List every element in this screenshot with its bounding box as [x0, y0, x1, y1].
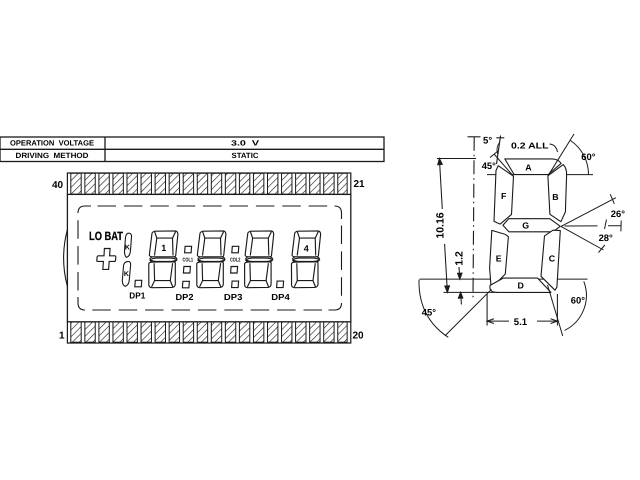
svg-text:45°: 45°	[422, 307, 436, 318]
svg-text:28°: 28°	[599, 232, 613, 243]
svg-text:1.2: 1.2	[454, 251, 466, 266]
svg-text:5°: 5°	[483, 136, 492, 147]
svg-text:LO BAT: LO BAT	[89, 229, 124, 243]
svg-text:E: E	[496, 254, 502, 264]
svg-text:A: A	[525, 162, 532, 172]
svg-text:D: D	[518, 281, 524, 291]
svg-text:45°: 45°	[482, 160, 496, 171]
svg-text:K: K	[124, 271, 129, 278]
svg-text:DP1: DP1	[129, 290, 145, 300]
svg-text:B: B	[552, 192, 558, 202]
svg-text:DP2: DP2	[176, 292, 194, 302]
svg-text:20: 20	[353, 331, 365, 342]
svg-text:60°: 60°	[581, 151, 595, 162]
svg-text:DP4: DP4	[271, 292, 290, 302]
svg-text:DP3: DP3	[224, 292, 243, 302]
svg-text:4: 4	[304, 243, 309, 253]
svg-text:10.16: 10.16	[434, 212, 446, 238]
svg-text:STATIC: STATIC	[232, 151, 260, 160]
svg-text:26°: 26°	[611, 208, 625, 219]
svg-text:3.0 V: 3.0 V	[231, 139, 260, 148]
svg-text:G: G	[522, 220, 529, 230]
svg-text:40: 40	[52, 180, 64, 191]
svg-text:21: 21	[354, 179, 366, 190]
svg-text:1: 1	[161, 243, 166, 253]
svg-text:60°: 60°	[571, 295, 585, 306]
svg-text:C: C	[549, 254, 556, 264]
svg-text:5.1: 5.1	[514, 317, 528, 328]
svg-text:K: K	[125, 244, 130, 251]
svg-text:DRIVING METHOD: DRIVING METHOD	[16, 151, 90, 160]
svg-text:1: 1	[59, 331, 65, 342]
svg-text:0.2 ALL: 0.2 ALL	[511, 141, 549, 151]
svg-text:F: F	[501, 191, 507, 201]
svg-text:COL1: COL1	[183, 258, 194, 264]
svg-text:COL2: COL2	[230, 258, 241, 264]
svg-text:OPERATION VOLTAGE: OPERATION VOLTAGE	[10, 139, 94, 148]
